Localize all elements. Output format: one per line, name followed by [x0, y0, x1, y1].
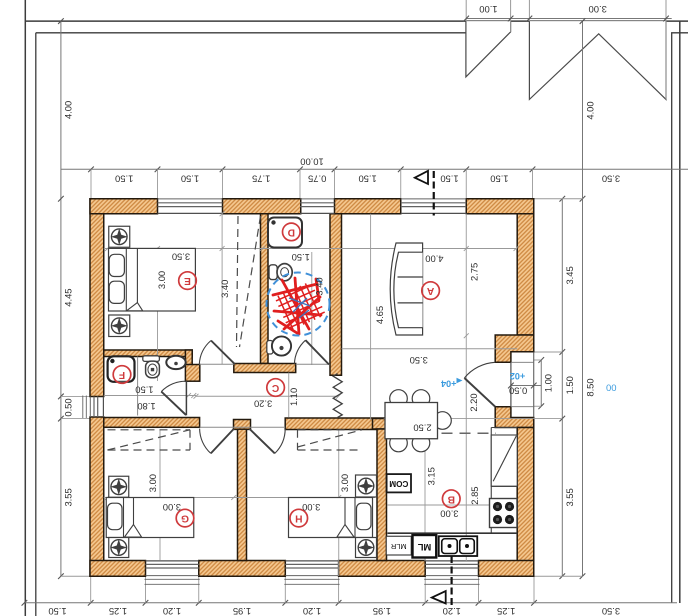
svg-text:10.00: 10.00 — [300, 157, 323, 168]
svg-text:3.40: 3.40 — [219, 280, 230, 298]
svg-text:+04: +04 — [440, 379, 456, 389]
svg-text:4.00: 4.00 — [62, 101, 73, 119]
svg-text:3.50: 3.50 — [602, 606, 620, 616]
svg-text:1.20: 1.20 — [303, 606, 321, 616]
svg-text:A: A — [426, 285, 434, 296]
svg-text:1.50: 1.50 — [564, 376, 575, 394]
svg-text:3.50: 3.50 — [172, 251, 190, 262]
svg-text:1.50: 1.50 — [181, 173, 199, 184]
svg-text:0.50: 0.50 — [62, 398, 73, 416]
svg-text:00: 00 — [606, 382, 616, 393]
svg-text:1.25: 1.25 — [109, 606, 127, 616]
svg-text:4.00: 4.00 — [425, 253, 443, 264]
svg-text:E: E — [184, 275, 191, 286]
svg-text:8.50: 8.50 — [584, 378, 595, 396]
svg-text:H: H — [295, 513, 302, 524]
svg-text:3.00: 3.00 — [163, 502, 181, 513]
svg-text:+02: +02 — [510, 371, 526, 381]
svg-text:1.00: 1.00 — [542, 374, 553, 392]
svg-text:2.75: 2.75 — [468, 263, 479, 281]
svg-text:2.85: 2.85 — [469, 486, 480, 504]
svg-text:1.95: 1.95 — [373, 606, 391, 616]
svg-text:MLR: MLR — [391, 542, 407, 551]
svg-text:G: G — [181, 513, 189, 524]
svg-text:3.00: 3.00 — [156, 271, 167, 289]
svg-text:1.50: 1.50 — [135, 384, 153, 395]
svg-text:3.00: 3.00 — [589, 4, 607, 15]
svg-text:1.20: 1.20 — [443, 606, 461, 616]
svg-text:1.50: 1.50 — [440, 173, 458, 184]
svg-text:3.50: 3.50 — [410, 355, 428, 366]
svg-text:B: B — [448, 493, 455, 504]
svg-text:4.45: 4.45 — [62, 288, 73, 306]
svg-text:3.50: 3.50 — [602, 173, 620, 184]
svg-text:3.00: 3.00 — [147, 474, 158, 492]
svg-text:1.10: 1.10 — [288, 388, 299, 406]
svg-text:1.50: 1.50 — [292, 252, 310, 263]
svg-text:3.40: 3.40 — [313, 277, 324, 295]
svg-text:3.55: 3.55 — [62, 488, 73, 506]
svg-text:0.50: 0.50 — [509, 386, 527, 397]
svg-text:1.50: 1.50 — [490, 173, 508, 184]
svg-text:COM: COM — [389, 479, 408, 488]
svg-text:2.50: 2.50 — [413, 422, 431, 433]
svg-text:3.15: 3.15 — [425, 467, 436, 485]
svg-text:F: F — [119, 369, 125, 380]
svg-text:1.20: 1.20 — [163, 606, 181, 616]
svg-text:3.55: 3.55 — [564, 488, 575, 506]
svg-text:ML: ML — [417, 542, 431, 553]
svg-text:0.75: 0.75 — [308, 173, 326, 184]
svg-text:1.75: 1.75 — [252, 173, 270, 184]
svg-text:1.50: 1.50 — [48, 606, 66, 616]
svg-text:1.95: 1.95 — [233, 606, 251, 616]
svg-text:C: C — [271, 382, 279, 393]
svg-text:4.00: 4.00 — [584, 101, 595, 119]
svg-text:4.65: 4.65 — [374, 306, 385, 324]
svg-text:3.00: 3.00 — [339, 474, 350, 492]
svg-text:3.00: 3.00 — [440, 509, 458, 520]
svg-text:1.00: 1.00 — [479, 4, 497, 15]
svg-text:1.50: 1.50 — [358, 173, 376, 184]
svg-text:2.20: 2.20 — [468, 393, 479, 411]
svg-text:3.20: 3.20 — [254, 399, 272, 410]
svg-text:1.25: 1.25 — [497, 606, 515, 616]
svg-text:3.00: 3.00 — [302, 502, 320, 513]
svg-text:1.80: 1.80 — [137, 401, 155, 412]
svg-text:1.50: 1.50 — [115, 173, 133, 184]
svg-text:D: D — [288, 227, 295, 238]
svg-text:3.45: 3.45 — [564, 266, 575, 284]
